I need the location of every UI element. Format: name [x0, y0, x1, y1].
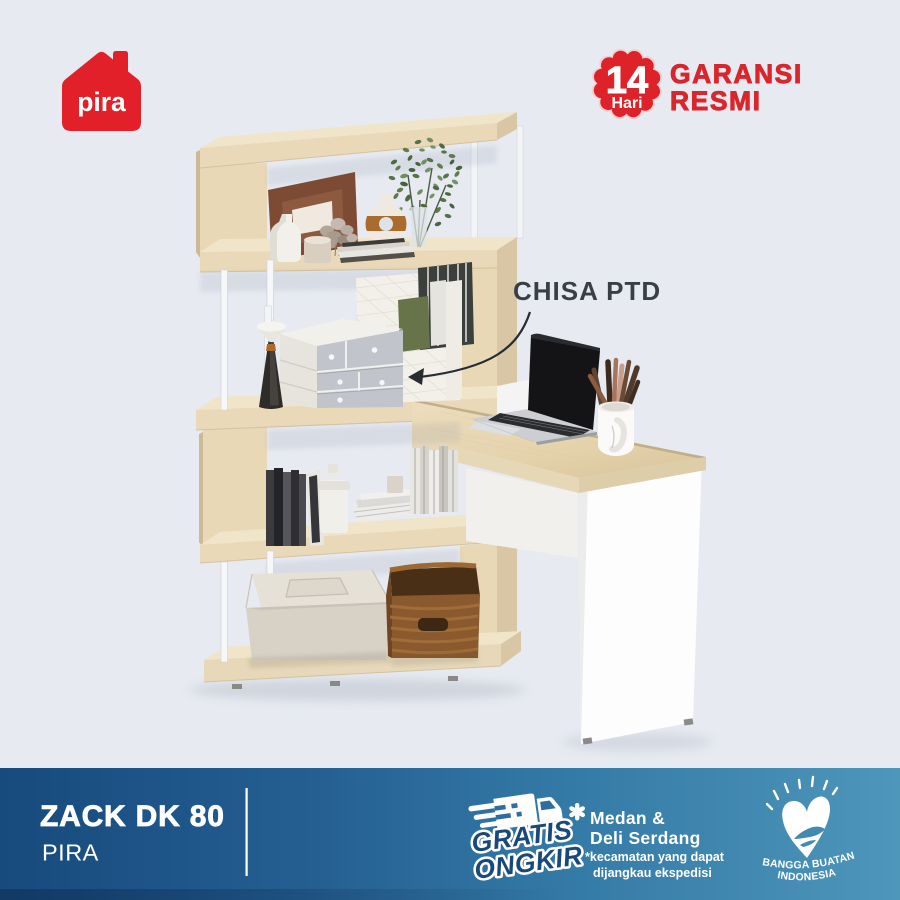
- svg-text:ZACK DK 80: ZACK DK 80: [40, 800, 225, 833]
- svg-text:CHISA PTD: CHISA PTD: [513, 276, 661, 306]
- svg-text:Medan &: Medan &: [590, 808, 665, 828]
- svg-text:*kecamatan yang dapat: *kecamatan yang dapat: [585, 850, 725, 864]
- svg-text:PIRA: PIRA: [42, 840, 99, 866]
- svg-text:RESMI: RESMI: [670, 86, 761, 116]
- svg-text:Deli Serdang: Deli Serdang: [590, 828, 701, 848]
- svg-text:dijangkau ekspedisi: dijangkau ekspedisi: [593, 866, 712, 880]
- svg-text:GARANSI: GARANSI: [670, 59, 803, 89]
- svg-text:Hari: Hari: [611, 95, 642, 112]
- svg-text:pira: pira: [77, 87, 126, 117]
